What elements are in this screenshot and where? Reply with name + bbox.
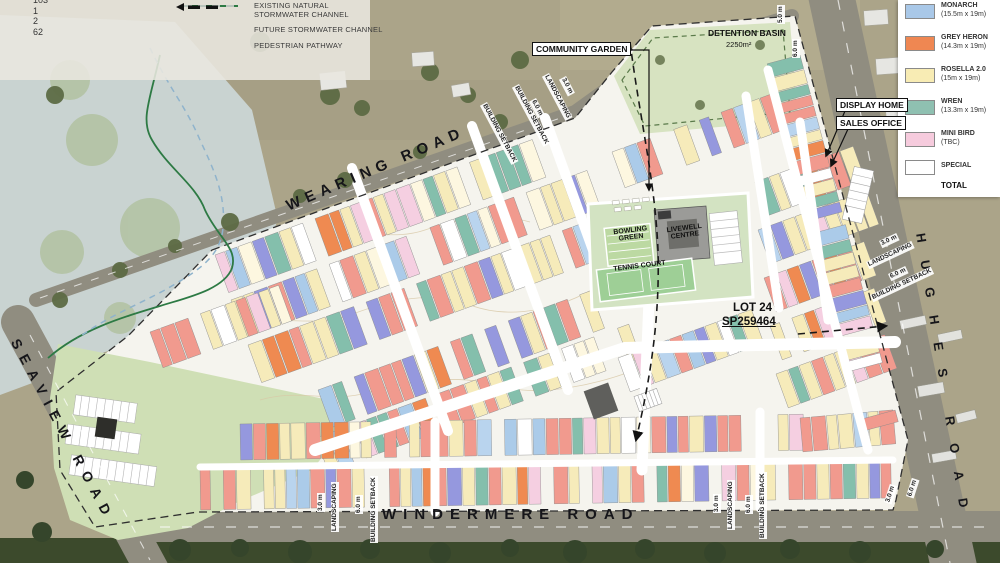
residential-lot [409,421,420,457]
residential-lot [389,467,400,507]
residential-lot [597,418,610,454]
residential-lot [236,469,251,509]
legend-swatch [905,36,935,51]
legend-total-label: TOTAL [941,181,967,190]
residential-lot [489,465,502,505]
dimension-label: 6.0 m [792,39,800,58]
residential-lot [830,459,843,499]
residential-lot [400,466,411,506]
legend-size: (14.3m x 19m) [941,43,986,50]
residential-lot [533,419,546,455]
residential-lot [291,423,306,459]
landscaping-label: LANDSCAPING [331,482,339,532]
legend-count: 2 [33,16,48,27]
residential-lot [554,464,569,504]
residential-lot [603,463,618,503]
legend-name: MINI BIRD [941,130,975,137]
residential-lot [681,461,694,501]
plan-number-label: SP259464 [722,316,776,328]
legend-swatch [905,160,935,175]
residential-lot [223,469,236,509]
legend-count: 62 [33,27,48,38]
residential-lot [788,459,803,499]
legend-swatch [905,100,935,115]
residential-lot [476,465,489,505]
residential-lot [337,467,352,507]
residential-lot [477,420,492,456]
pedestrian-pathway-arrow-icon [176,42,254,44]
detention-basin-label: DETENTION BASIN [708,28,786,38]
residential-lot [412,466,423,506]
residential-lot [517,464,528,504]
future-channel-line-icon [176,26,254,28]
lot-type-legend: MONARCH(15.5m x 19m) GREY HERON(14.3m x … [898,0,1000,197]
residential-lot [689,416,704,452]
residential-lot [804,459,817,499]
legend-count: 103 [33,0,48,6]
display-home-callout: DISPLAY HOME [836,98,908,112]
legend-item-rosella: ROSELLA 2.0(15m x 19m) [898,66,1000,96]
residential-lot [729,415,742,451]
residential-lot [718,415,729,451]
residential-lot [704,416,717,452]
residential-lot [856,458,869,498]
residential-lot [569,463,580,503]
dimension-label: 3.0 m [713,494,721,513]
legend-name: WREN [941,98,962,105]
residential-lot [778,414,789,450]
sales-office-callout: SALES OFFICE [836,116,906,130]
residential-lot [572,418,583,454]
legend-item-monarch: MONARCH(15.5m x 19m) [898,2,1000,32]
residential-lot [464,420,477,456]
existing-channel-label: EXISTING NATURAL STORMWATER CHANNEL [254,2,379,19]
residential-lot [869,458,880,498]
building-setback-label: BUILDING SETBACK [759,472,767,539]
residential-lot [286,468,297,508]
residential-lot [668,462,681,502]
site-masterplan: 103 1 2 62 EXISTING NATURAL STORMWATER C… [0,0,1000,563]
legend-swatch [905,4,935,19]
legend-item-wren: WREN(13.3m x 19m) [898,98,1000,128]
lot-24-label: LOT 24 [733,302,772,314]
residential-lot [447,465,462,505]
legend-item-mini-bird: MINI BIRD(TBC) [898,130,1000,160]
residential-lot [667,416,678,452]
dimension-label: 3.0 m [317,493,325,512]
residential-lot [694,461,709,501]
residential-lot [652,417,667,453]
residential-lot [843,459,856,499]
residential-lot [264,469,275,509]
residential-lot [502,464,517,504]
landscaping-label: LANDSCAPING [727,480,735,530]
residential-lot [678,416,689,452]
building-setback-label: BUILDING SETBACK [370,476,378,543]
residential-lot [518,419,533,455]
pedestrian-pathway-label: PEDESTRIAN PATHWAY [254,42,343,51]
legend-swatch [905,68,935,83]
legend-name: MONARCH [941,2,978,9]
residential-lot [253,424,266,460]
legend-count: 1 [33,6,48,17]
site-plan-canvas [0,0,1000,563]
residential-lot [240,424,253,460]
residential-lot [275,469,286,509]
legend-name: ROSELLA 2.0 [941,66,986,73]
residential-lot [610,417,621,453]
residential-lot [504,419,517,455]
legend-size: (15m x 19m) [941,75,980,82]
legend-item-grey-heron: GREY HERON(14.3m x 19m) [898,34,1000,64]
residential-lot [546,418,559,454]
legend-size: (TBC) [941,139,960,146]
residential-lot [837,414,854,449]
dimension-label: 6.0 m [745,495,753,514]
residential-lot [297,468,310,508]
dimension-label: 6.0 m [355,495,363,514]
road-label-windermere: WINDERMERE ROAD [382,506,640,523]
legend-name: GREY HERON [941,34,988,41]
line-legend: EXISTING NATURAL STORMWATER CHANNEL FUTU… [176,2,391,57]
legend-size: (15.5m x 19m) [941,11,986,18]
community-garden-callout: COMMUNITY GARDEN [532,42,631,56]
future-channel-label: FUTURE STORMWATER CHANNEL [254,26,383,35]
residential-lot [528,464,541,504]
residential-lot [621,417,636,453]
residential-lot [280,423,291,459]
residential-lot [811,416,828,451]
residential-lot [266,423,279,459]
community-precinct [588,193,753,310]
residential-lot [200,470,211,510]
residential-lot [657,462,668,502]
dimension-label: 5.0 m [777,5,785,24]
legend-size: (13.3m x 19m) [941,107,986,114]
community-parking [709,211,742,266]
residential-lot [592,463,603,503]
residential-lot [559,418,572,454]
residential-lot [817,459,830,499]
open-space-building [95,417,118,440]
residential-lot [462,465,475,505]
legend-swatch [905,132,935,147]
residential-lot [618,462,631,502]
legend-name: SPECIAL [941,162,971,169]
detention-basin-area-label: 2250m² [726,40,751,49]
legend-counts-column: 103 1 2 62 [33,0,48,37]
residential-lot [584,418,597,454]
